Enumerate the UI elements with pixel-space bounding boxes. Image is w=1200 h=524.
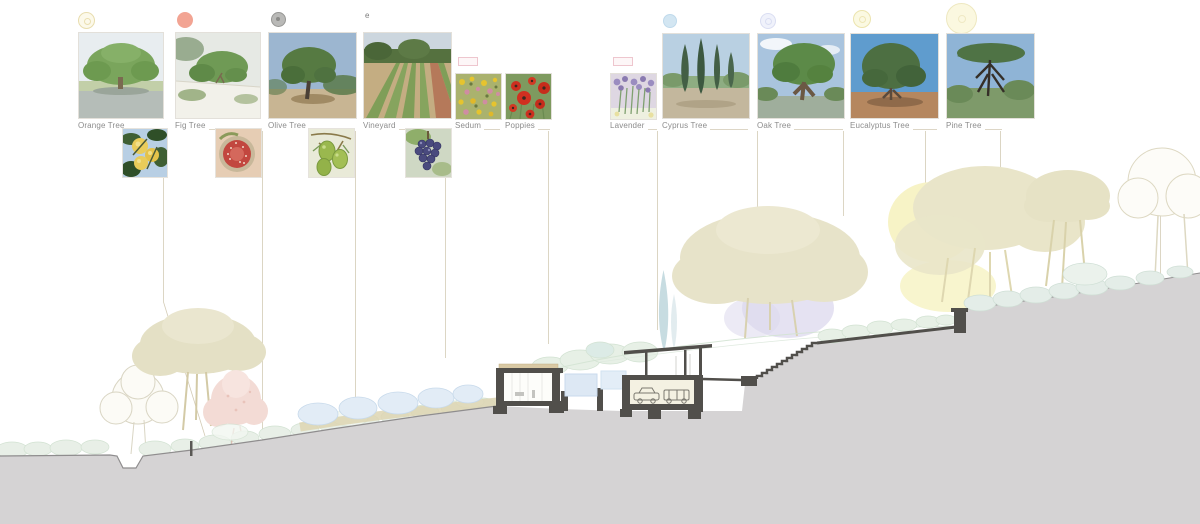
pink-rect-icon [613, 57, 633, 66]
landscape-section-sheet: Orange Tree [0, 0, 1200, 524]
orange-tree-watercolor [100, 365, 178, 454]
citrus-ring-icon [78, 12, 95, 29]
sedum-photo [455, 73, 502, 120]
letter-e-marker: e [365, 11, 369, 20]
pink-rect-icon [458, 57, 478, 66]
oak-tree-photo [757, 33, 845, 119]
yellow-ring-icon [853, 10, 871, 28]
orange-fruit-photo [122, 128, 168, 178]
olive-tree-label: Olive Tree [268, 121, 306, 130]
pine-tree-outline-watercolor [1118, 148, 1200, 278]
gray-tree-dot-icon [271, 12, 286, 27]
oak-tree-watercolor [672, 206, 868, 338]
pine-tree-label: Pine Tree [946, 121, 982, 130]
eucalyptus-tree-photo [850, 33, 939, 119]
cyprus-tree-photo [662, 33, 750, 119]
leader-underline [538, 121, 550, 130]
blue-dot-icon [663, 14, 677, 28]
leader-underline [794, 121, 843, 130]
fig-tree-label: Fig Tree [175, 121, 206, 130]
cyprus-tree-label: Cyprus Tree [662, 121, 707, 130]
lavender-photo [610, 73, 657, 120]
garden-wall-tick [190, 441, 193, 456]
fig-tree-photo [175, 32, 261, 119]
coral-dot-icon [177, 12, 193, 28]
fig-fruit-photo [215, 128, 262, 178]
oak-tree-label: Oak Tree [757, 121, 791, 130]
olive-tree-photo [268, 32, 357, 119]
pine-tree-photo [946, 33, 1035, 119]
poppies-photo [505, 73, 552, 120]
orange-tree-photo [78, 32, 164, 119]
eucalyptus-tree-label: Eucalyptus Tree [850, 121, 910, 130]
pale-blue-ring-icon [760, 13, 776, 29]
leader-underline [710, 121, 748, 130]
poppies-label: Poppies [505, 121, 535, 130]
leader-underline [648, 121, 657, 130]
grape-fruit-photo [405, 128, 452, 178]
yellow-ring-large-icon [946, 3, 977, 34]
sedum-label: Sedum [455, 121, 481, 130]
water-terrace-section [561, 371, 626, 411]
leader-underline [913, 121, 937, 130]
vineyard-photo [363, 32, 452, 119]
leader-underline [985, 121, 1002, 130]
orange-tree-label: Orange Tree [78, 121, 125, 130]
leader-underline [484, 121, 500, 130]
main-house-section [493, 364, 564, 414]
vineyard-label: Vineyard [363, 121, 396, 130]
lavender-label: Lavender [610, 121, 645, 130]
olive-fruit-photo [308, 128, 355, 178]
